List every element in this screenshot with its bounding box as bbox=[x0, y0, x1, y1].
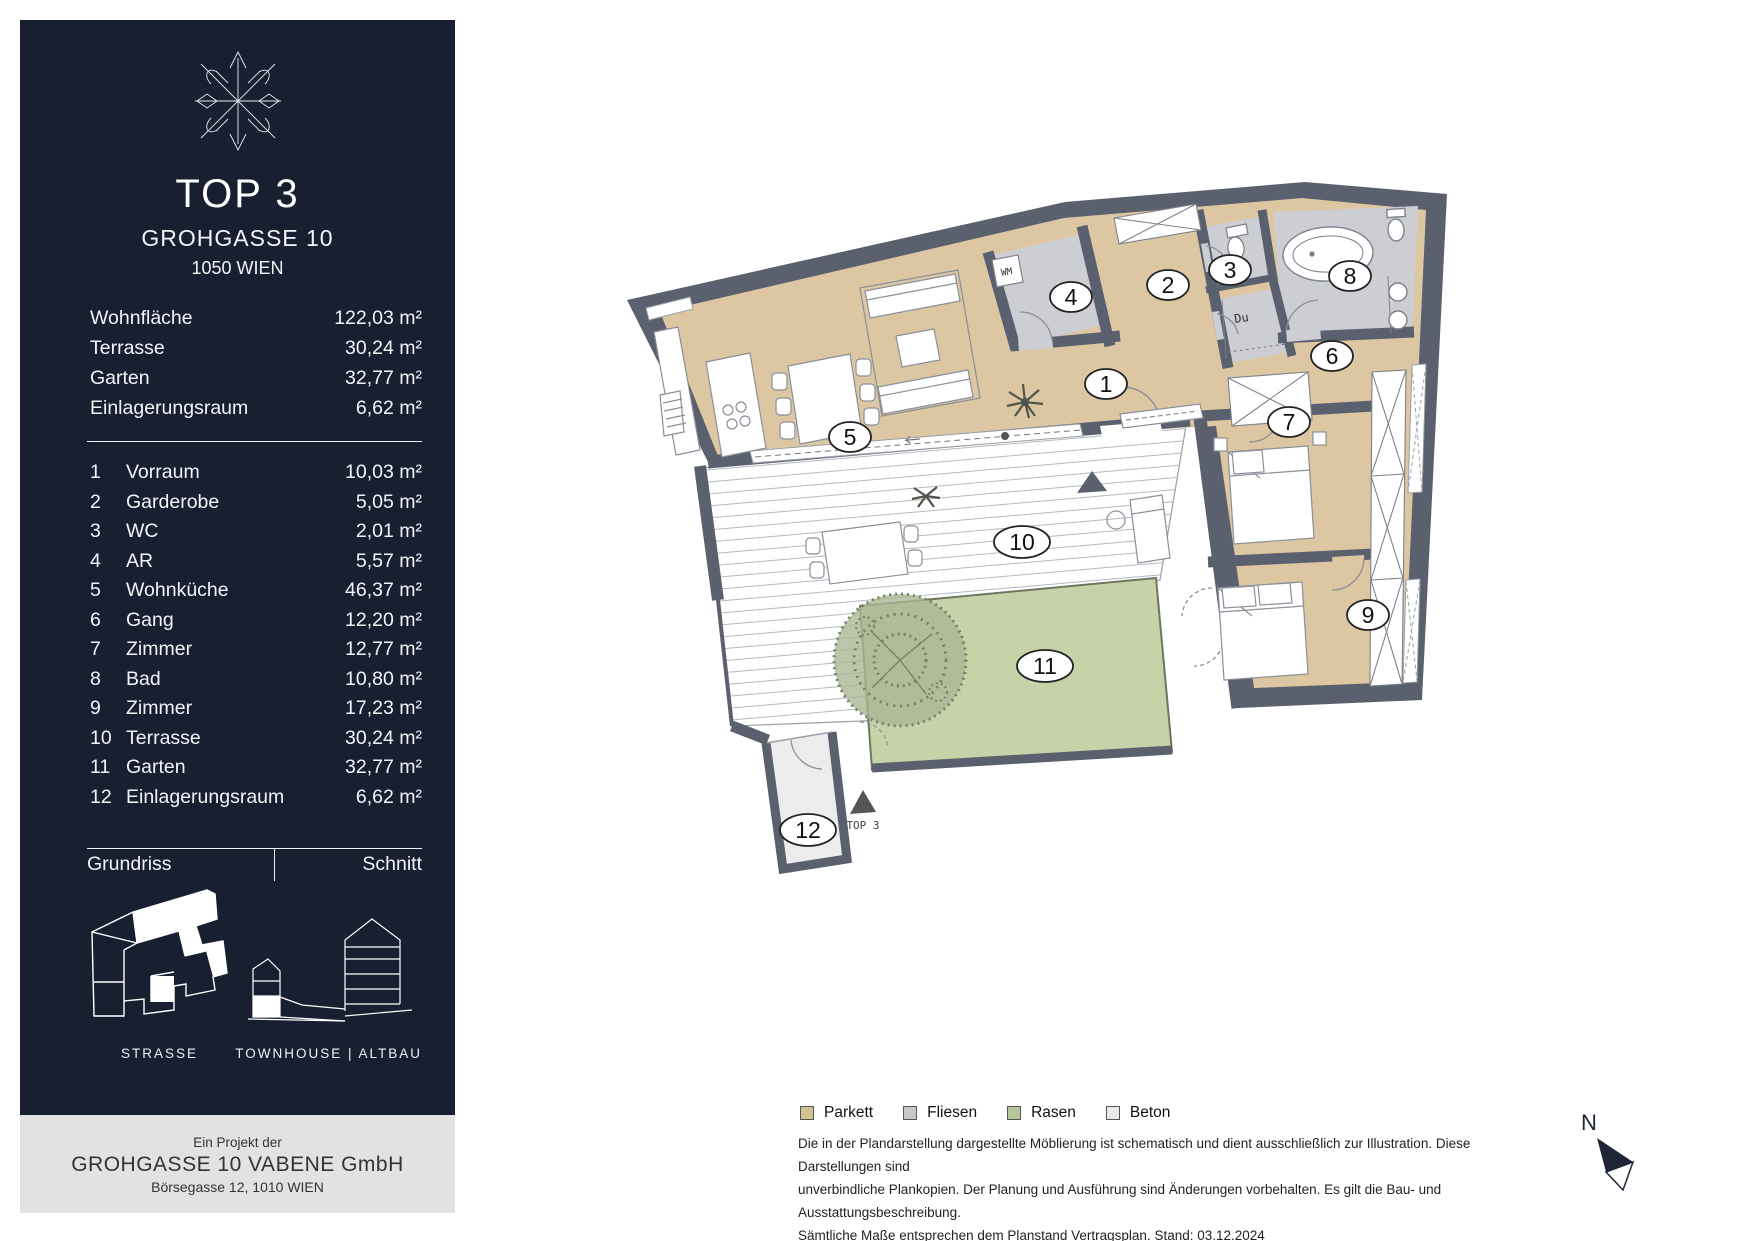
schnitt-label: Schnitt bbox=[362, 853, 422, 876]
vabene-logo-icon bbox=[183, 46, 293, 156]
unit-title: TOP 3 bbox=[20, 172, 455, 217]
divider bbox=[274, 849, 275, 881]
room-label: AR bbox=[126, 547, 356, 577]
summary-label: Terrasse bbox=[90, 333, 165, 363]
room-row: 6Gang12,20 m² bbox=[90, 606, 422, 636]
room-row: 1Vorraum10,03 m² bbox=[90, 458, 422, 488]
parkett-swatch bbox=[800, 1106, 814, 1120]
beton-swatch bbox=[1106, 1106, 1120, 1120]
disclaimer: Die in der Plandarstellung dargestellte … bbox=[798, 1132, 1538, 1241]
footer-line3: Börsegasse 12, 1010 WIEN bbox=[20, 1179, 455, 1195]
summary-value: 122,03 m² bbox=[334, 303, 422, 333]
room-row: 9Zimmer17,23 m² bbox=[90, 694, 422, 724]
room-no: 3 bbox=[90, 517, 126, 547]
room-number: 9 bbox=[1362, 602, 1375, 628]
room-no: 4 bbox=[90, 547, 126, 577]
room-label: Terrasse bbox=[126, 724, 345, 754]
disclaimer-line: Die in der Plandarstellung dargestellte … bbox=[798, 1132, 1538, 1178]
legend-label: Fliesen bbox=[927, 1104, 977, 1122]
room-area: 30,24 m² bbox=[345, 724, 422, 754]
room-no: 9 bbox=[90, 694, 126, 724]
entrance-marker: TOP 3 bbox=[846, 790, 879, 832]
room-area: 12,77 m² bbox=[345, 635, 422, 665]
legend-label: Parkett bbox=[824, 1104, 873, 1122]
room-area: 17,23 m² bbox=[345, 694, 422, 724]
room-no: 2 bbox=[90, 488, 126, 518]
room-no: 10 bbox=[90, 724, 126, 754]
project-footer: Ein Projekt der GROHGASSE 10 VABENE GmbH… bbox=[20, 1115, 455, 1213]
garden-tree-icon bbox=[834, 594, 966, 726]
room-number: 5 bbox=[844, 424, 857, 450]
room-row: 4AR5,57 m² bbox=[90, 547, 422, 577]
legend-item: Parkett bbox=[800, 1104, 873, 1122]
room-area: 12,20 m² bbox=[345, 606, 422, 636]
schnitt-caption: TOWNHOUSE | ALTBAU bbox=[235, 1046, 422, 1061]
room-area: 2,01 m² bbox=[356, 517, 422, 547]
summary-label: Einlagerungsraum bbox=[90, 393, 248, 423]
room-label: Garderobe bbox=[126, 488, 356, 518]
fliesen-swatch bbox=[903, 1106, 917, 1120]
room-label: Einlagerungsraum bbox=[126, 783, 356, 813]
summary-row: Einlagerungsraum6,62 m² bbox=[90, 393, 422, 423]
room-number: 12 bbox=[795, 817, 821, 843]
room-area: 5,57 m² bbox=[356, 547, 422, 577]
floorplan-drawing: WM Du TOP 3 1 2 3 bbox=[560, 160, 1500, 880]
room-number: 1 bbox=[1100, 371, 1113, 397]
room-number: 11 bbox=[1033, 653, 1057, 679]
legend-item: Beton bbox=[1106, 1104, 1171, 1122]
room-row: 5Wohnküche46,37 m² bbox=[90, 576, 422, 606]
room-area: 10,03 m² bbox=[345, 458, 422, 488]
entrance-label: TOP 3 bbox=[846, 819, 879, 832]
north-label: N bbox=[1581, 1110, 1597, 1135]
summary-label: Garten bbox=[90, 363, 150, 393]
legend-item: Fliesen bbox=[903, 1104, 977, 1122]
room-number: 7 bbox=[1283, 409, 1296, 435]
du-label: Du bbox=[1233, 310, 1249, 326]
summary-value: 6,62 m² bbox=[356, 393, 422, 423]
mini-diagrams: STRASSE TOWNHOUSE | ALTBAU bbox=[87, 886, 422, 1061]
address-line1: GROHGASSE 10 bbox=[20, 225, 455, 252]
room-no: 6 bbox=[90, 606, 126, 636]
room-number: 3 bbox=[1224, 257, 1237, 283]
room-label: Bad bbox=[126, 665, 345, 695]
footer-line1: Ein Projekt der bbox=[20, 1135, 455, 1150]
mini-section-icon bbox=[244, 911, 414, 1036]
room-row: 8Bad10,80 m² bbox=[90, 665, 422, 695]
summary-label: Wohnfläche bbox=[90, 303, 193, 333]
room-area: 6,62 m² bbox=[356, 783, 422, 813]
washing-machine: WM bbox=[992, 255, 1023, 287]
grundriss-caption: STRASSE bbox=[121, 1046, 198, 1061]
divider bbox=[87, 441, 422, 442]
room-number: 2 bbox=[1162, 272, 1175, 298]
room-label: Garten bbox=[126, 753, 345, 783]
room-no: 1 bbox=[90, 458, 126, 488]
summary-row: Garten32,77 m² bbox=[90, 363, 422, 393]
room-area: 10,80 m² bbox=[345, 665, 422, 695]
room-no: 12 bbox=[90, 783, 126, 813]
room-label: Vorraum bbox=[126, 458, 345, 488]
room-number: 8 bbox=[1344, 263, 1357, 289]
room-label: Gang bbox=[126, 606, 345, 636]
room-area: 32,77 m² bbox=[345, 753, 422, 783]
room-row: 3WC2,01 m² bbox=[90, 517, 422, 547]
summary-value: 30,24 m² bbox=[345, 333, 422, 363]
room-number: 10 bbox=[1009, 529, 1035, 555]
room-label: WC bbox=[126, 517, 356, 547]
area-summary: Wohnfläche122,03 m² Terrasse30,24 m² Gar… bbox=[20, 303, 455, 423]
mini-schnitt: TOWNHOUSE | ALTBAU bbox=[235, 911, 422, 1061]
room-row: 7Zimmer12,77 m² bbox=[90, 635, 422, 665]
rasen-swatch bbox=[1007, 1106, 1021, 1120]
floorplan-sheet: { "sidebar": { "unit_title": "TOP 3", "a… bbox=[0, 0, 1755, 1241]
garden bbox=[834, 578, 1172, 770]
legend-label: Beton bbox=[1130, 1104, 1171, 1122]
room-number: 4 bbox=[1065, 284, 1078, 310]
summary-value: 32,77 m² bbox=[345, 363, 422, 393]
room-row: 10Terrasse30,24 m² bbox=[90, 724, 422, 754]
room-no: 5 bbox=[90, 576, 126, 606]
room-no: 7 bbox=[90, 635, 126, 665]
sidebar: TOP 3 GROHGASSE 10 1050 WIEN Wohnfläche1… bbox=[20, 20, 455, 1115]
disclaimer-line: unverbindliche Plankopien. Der Planung u… bbox=[798, 1178, 1538, 1224]
summary-row: Terrasse30,24 m² bbox=[90, 333, 422, 363]
mini-siteplan-icon bbox=[87, 886, 232, 1036]
plan-section-header: Grundriss Schnitt bbox=[87, 848, 422, 876]
north-compass-icon: N bbox=[1575, 1106, 1665, 1201]
room-no: 8 bbox=[90, 665, 126, 695]
material-legend: Parkett Fliesen Rasen Beton bbox=[800, 1104, 1200, 1122]
disclaimer-line: Sämtliche Maße entsprechen dem Planstand… bbox=[798, 1224, 1538, 1241]
wm-label: WM bbox=[1000, 266, 1013, 279]
room-no: 11 bbox=[90, 753, 126, 783]
room-number: 6 bbox=[1326, 343, 1339, 369]
room-row: 2Garderobe5,05 m² bbox=[90, 488, 422, 518]
address-line2: 1050 WIEN bbox=[20, 258, 455, 279]
mini-grundriss: STRASSE bbox=[87, 886, 232, 1061]
grundriss-label: Grundriss bbox=[87, 853, 172, 876]
summary-row: Wohnfläche122,03 m² bbox=[90, 303, 422, 333]
room-list: 1Vorraum10,03 m² 2Garderobe5,05 m² 3WC2,… bbox=[20, 458, 455, 812]
legend-item: Rasen bbox=[1007, 1104, 1076, 1122]
room-area: 5,05 m² bbox=[356, 488, 422, 518]
room-label: Zimmer bbox=[126, 635, 345, 665]
room-row: 12Einlagerungsraum6,62 m² bbox=[90, 783, 422, 813]
room-row: 11Garten32,77 m² bbox=[90, 753, 422, 783]
room-label: Wohnküche bbox=[126, 576, 345, 606]
room-area: 46,37 m² bbox=[345, 576, 422, 606]
room-label: Zimmer bbox=[126, 694, 345, 724]
footer-line2: GROHGASSE 10 VABENE GmbH bbox=[20, 1153, 455, 1177]
legend-label: Rasen bbox=[1031, 1104, 1076, 1122]
bed-room9 bbox=[1218, 582, 1308, 680]
logo-wrap bbox=[20, 20, 455, 156]
